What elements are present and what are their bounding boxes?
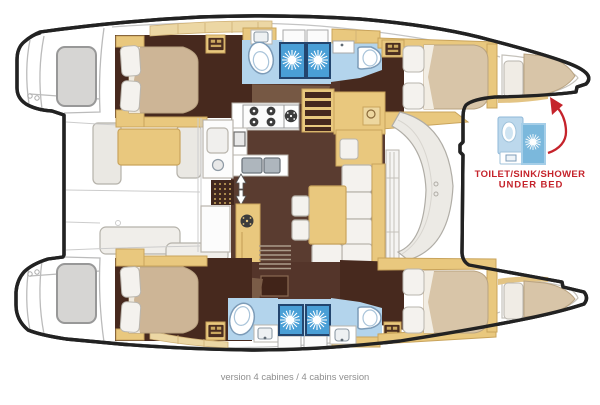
svg-text:UNDER BED: UNDER BED (499, 180, 564, 191)
svg-text:TOILET/SINK/SHOWER: TOILET/SINK/SHOWER (475, 169, 586, 180)
svg-text:version 4 cabines / 4 cabins v: version 4 cabines / 4 cabins version (221, 371, 370, 382)
